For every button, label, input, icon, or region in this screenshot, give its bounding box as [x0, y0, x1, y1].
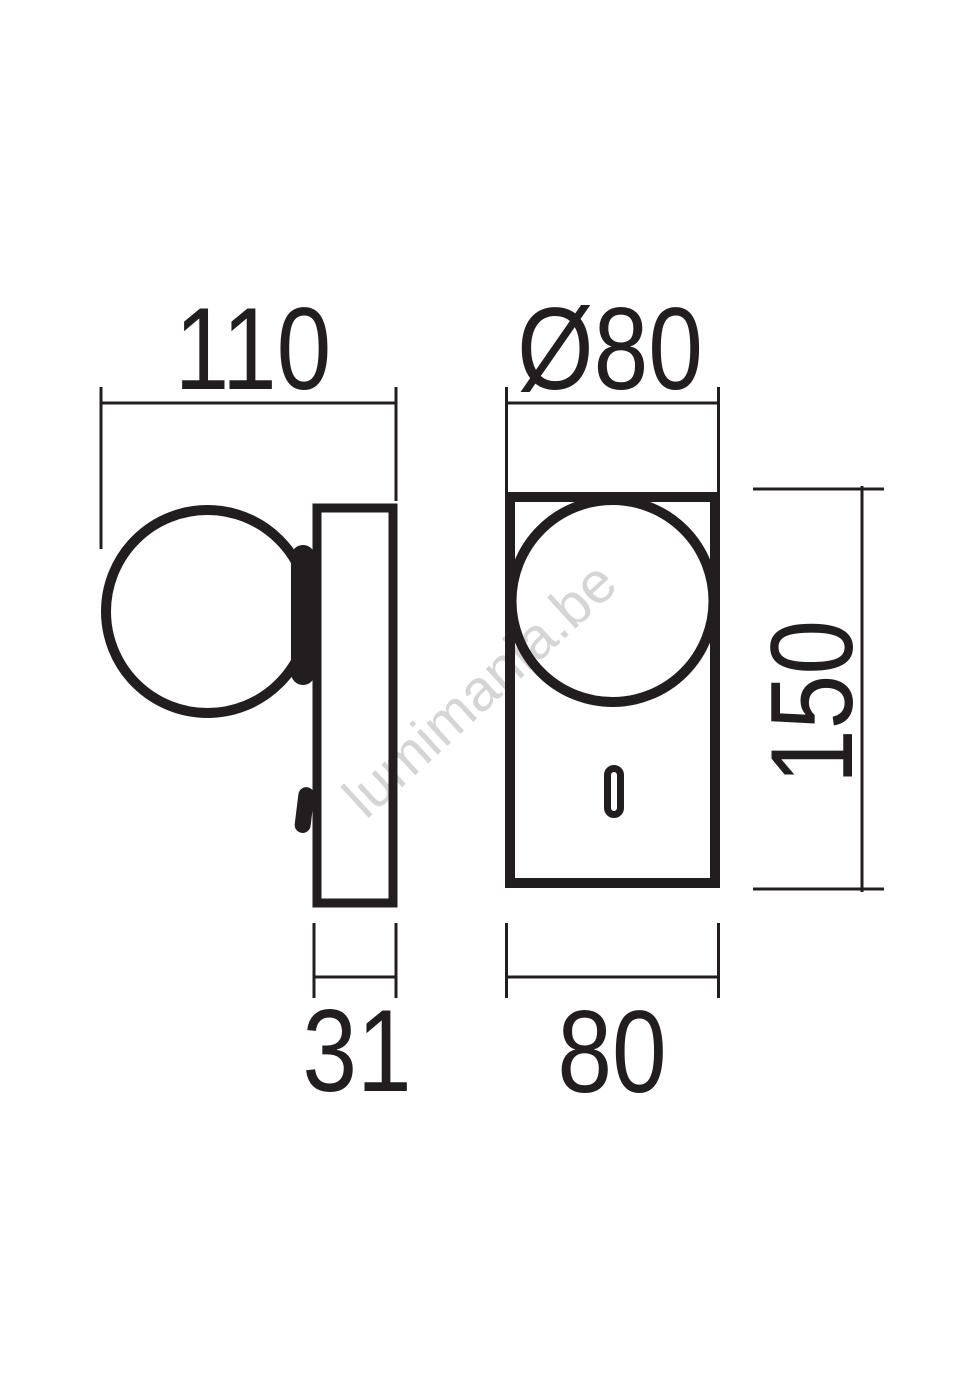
dimension-body-height: 150	[746, 486, 884, 892]
switch-slot-front	[608, 769, 621, 815]
front-view	[510, 497, 715, 883]
mounting-plate-side	[317, 508, 393, 903]
lamp-ball-side	[106, 510, 309, 713]
dimension-label-110: 110	[175, 283, 332, 414]
side-view	[106, 508, 393, 903]
dimension-label-80: 80	[557, 986, 666, 1117]
dimension-label-150: 150	[746, 620, 877, 784]
watermark-text: lumimania.be	[331, 549, 629, 830]
dimension-body-depth: 31	[302, 923, 411, 1116]
dimension-shade-diameter: Ø80	[507, 283, 719, 494]
lamp-body-front	[510, 497, 715, 883]
dimension-label-31: 31	[302, 985, 411, 1116]
luminaire-dimension-drawing: lumimania.be	[0, 0, 980, 1400]
dimension-label-dia80: Ø80	[517, 283, 703, 414]
dimension-body-width: 80	[507, 923, 719, 1117]
switch-lever-side	[294, 786, 315, 834]
